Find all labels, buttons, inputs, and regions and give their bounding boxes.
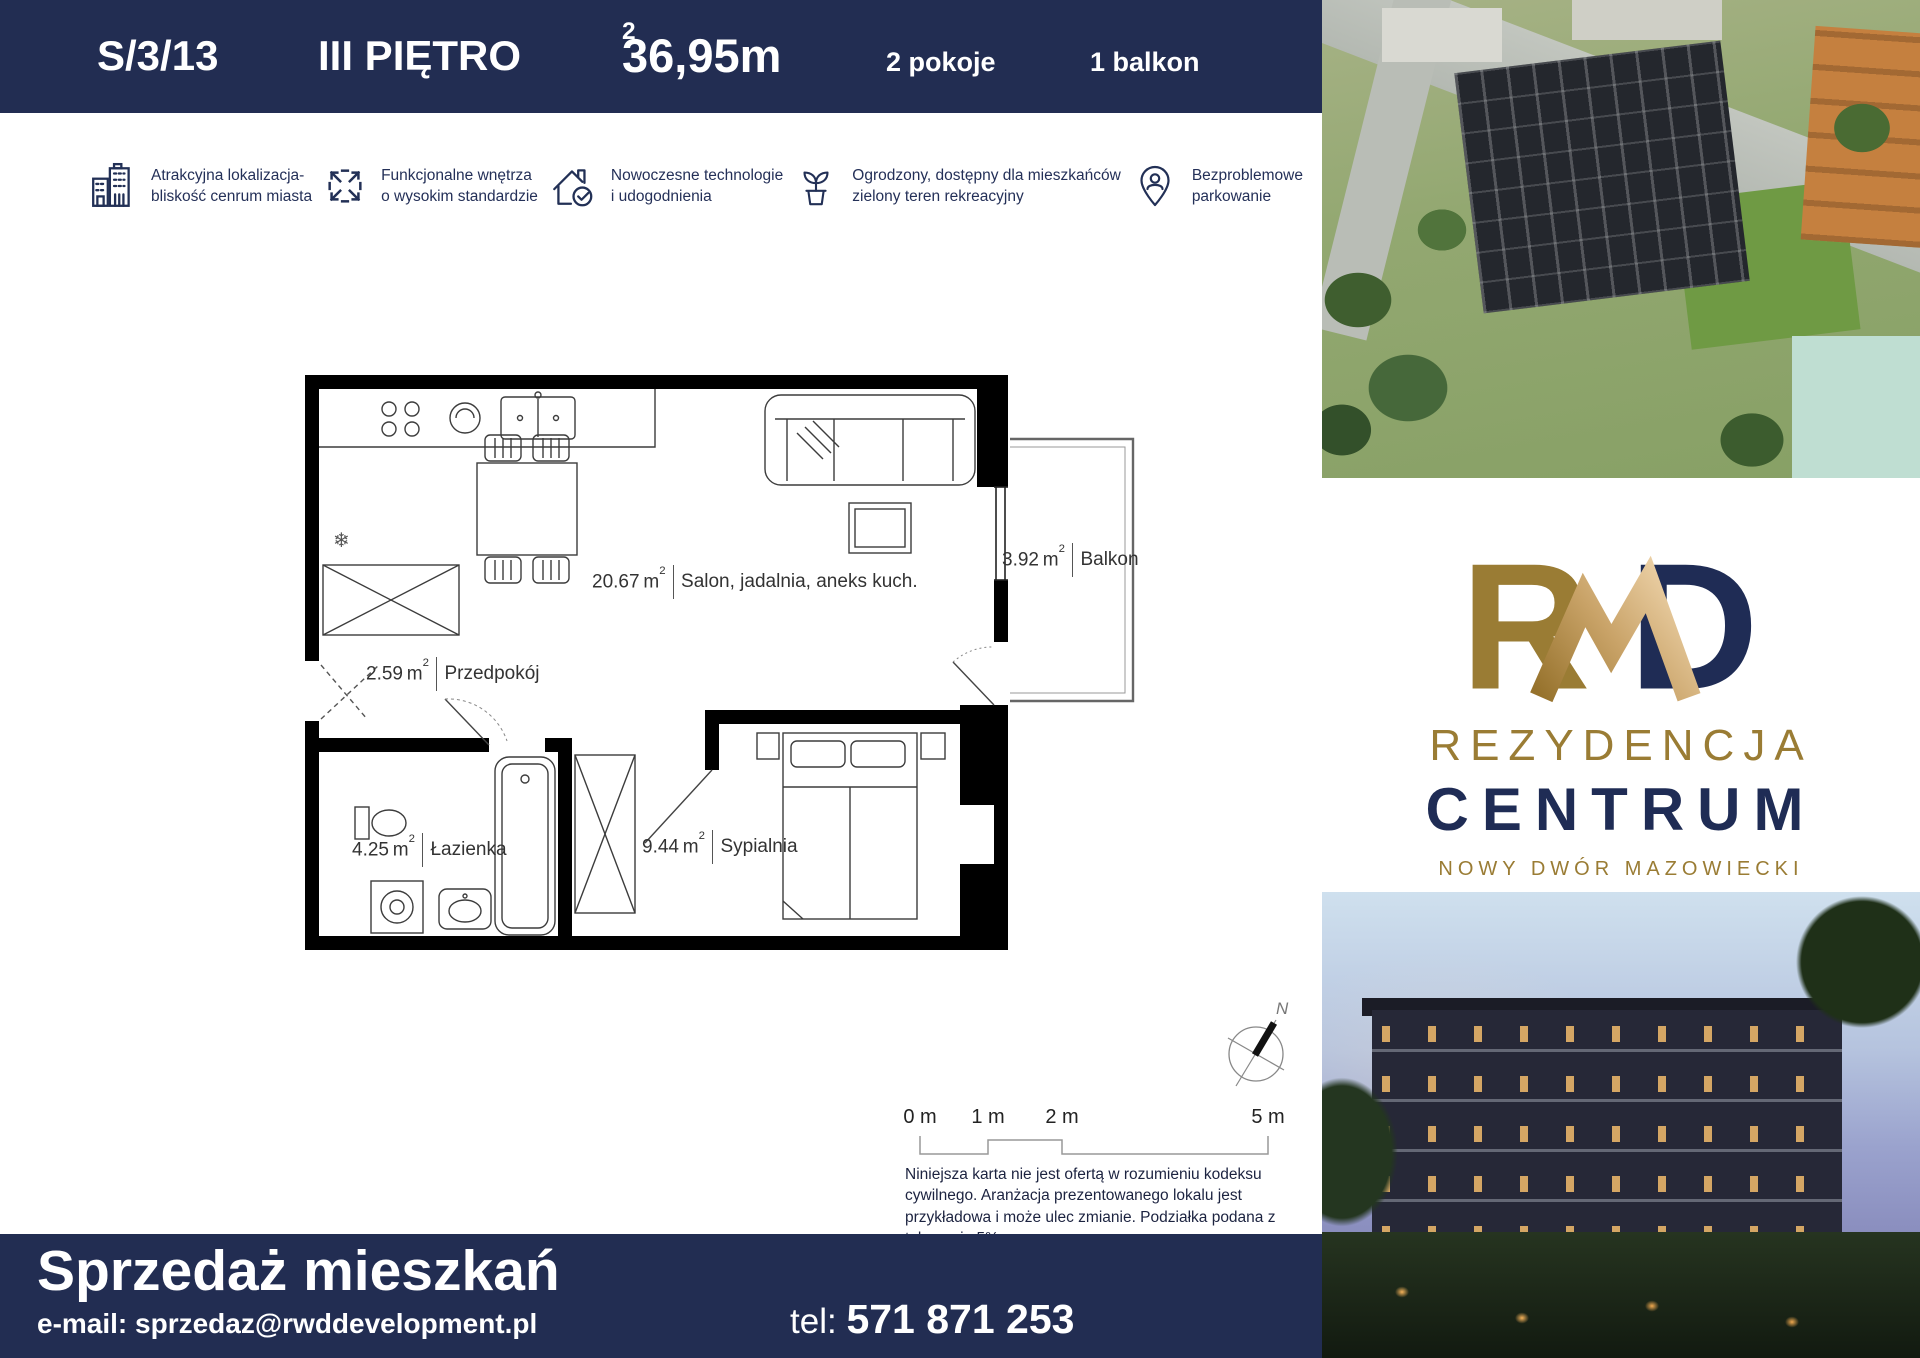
room-area: 2.59 xyxy=(366,663,403,684)
feature-text: Ogrodzony, dostępny dla mieszkańców ziel… xyxy=(852,165,1121,208)
room-area: 20.67 xyxy=(592,571,640,592)
feature-tech: Nowoczesne technologie i udogodnienia xyxy=(548,161,783,211)
room-name: Balkon xyxy=(1080,549,1138,571)
city-buildings-icon xyxy=(88,161,138,211)
label-divider xyxy=(1072,543,1074,577)
room-sup: 2 xyxy=(1059,543,1065,555)
scale-tick-5m: 5 m xyxy=(1251,1106,1284,1129)
apartment-offer-card: S/3/13 III PIĘTRO 36,95m2 2 pokoje 1 bal… xyxy=(0,0,1920,1358)
room-name: Salon, jadalnia, aneks kuch. xyxy=(681,571,918,593)
room-name: Sypialnia xyxy=(720,836,797,858)
room-name: Przedpokój xyxy=(444,663,539,685)
room-label-sypialnia: 9.44 m2 Sypialnia xyxy=(642,830,798,864)
brand-logo: R D REZYDENCJA CENTRUM NOWY DWÓR MAZOWIE… xyxy=(1322,478,1920,892)
label-divider xyxy=(422,833,424,867)
feature-line1: Ogrodzony, dostępny dla mieszkańców xyxy=(852,165,1121,186)
rwd-monogram: R D xyxy=(1451,530,1791,705)
room-sup: 2 xyxy=(699,830,705,842)
label-divider xyxy=(712,830,714,864)
floor-label: III PIĘTRO xyxy=(318,32,521,80)
area-label: 36,95m2 xyxy=(622,28,636,83)
footer-bar: Sprzedaż mieszkań e-mail: sprzedaz@rwdde… xyxy=(0,1234,1322,1358)
feature-text: Bezproblemowe parkowanie xyxy=(1192,165,1303,208)
sofa xyxy=(765,395,975,485)
bed xyxy=(757,733,945,919)
rooms-count: 2 pokoje xyxy=(886,47,996,78)
dining-set xyxy=(477,435,577,583)
compass-icon: N xyxy=(1222,998,1298,1092)
footer-email: e-mail: sprzedaz@rwddevelopment.pl xyxy=(37,1308,537,1340)
balcony-count: 1 balkon xyxy=(1090,47,1200,78)
room-unit: m xyxy=(643,571,659,592)
photo-tree-2 xyxy=(1322,1032,1432,1272)
feature-line2: i udogodnienia xyxy=(611,186,783,207)
plant-pot-icon xyxy=(793,163,839,209)
phone-label: tel: xyxy=(790,1302,837,1341)
footer-phone: tel: 571 871 253 xyxy=(790,1296,1074,1343)
hall-wardrobe xyxy=(323,565,459,635)
scale-bar: 0 m 1 m 2 m 5 m xyxy=(905,1106,1305,1158)
feature-garden: Ogrodzony, dostępny dla mieszkańców ziel… xyxy=(793,163,1121,209)
photo-tree xyxy=(1752,892,1920,1072)
room-unit: m xyxy=(407,663,423,684)
label-divider xyxy=(436,657,438,691)
feature-line1: Funkcjonalne wnętrza xyxy=(381,165,538,186)
label-divider xyxy=(673,565,675,599)
room-label-balkon: 3.92 m2 Balkon xyxy=(1002,543,1139,577)
photo-trees xyxy=(1322,0,1920,478)
phone-number: 571 871 253 xyxy=(846,1296,1074,1342)
room-label-przedpokoj: 2.59 m2 Przedpokój xyxy=(366,657,540,691)
room-area: 4.25 xyxy=(352,839,389,860)
feature-text: Atrakcyjna lokalizacja- bliskość cenrum … xyxy=(151,165,312,208)
scale-tick-2m: 2 m xyxy=(1045,1106,1078,1129)
header-bar: S/3/13 III PIĘTRO 36,95m2 2 pokoje 1 bal… xyxy=(0,0,1322,113)
room-area: 3.92 xyxy=(1002,549,1039,570)
feature-text: Funkcjonalne wnętrza o wysokim standardz… xyxy=(381,165,538,208)
kitchen xyxy=(319,389,655,447)
feature-line2: zielony teren rekreacyjny xyxy=(852,186,1121,207)
room-label-lazienka: 4.25 m2 Łazienka xyxy=(352,833,507,867)
feature-parking: Bezproblemowe parkowanie xyxy=(1131,162,1303,210)
feature-line1: Bezproblemowe xyxy=(1192,165,1303,186)
room-unit: m xyxy=(393,839,409,860)
room-area: 9.44 xyxy=(642,836,679,857)
room-label-salon: 20.67 m2 Salon, jadalnia, aneks kuch. xyxy=(592,565,918,599)
scale-tick-0m: 0 m xyxy=(903,1106,936,1129)
house-check-icon xyxy=(548,161,598,211)
scale-line xyxy=(905,1132,1305,1158)
room-name: Łazienka xyxy=(430,839,506,861)
footer-title: Sprzedaż mieszkań xyxy=(37,1238,560,1304)
feature-line1: Atrakcyjna lokalizacja- xyxy=(151,165,312,186)
parking-pin-icon xyxy=(1131,162,1179,210)
room-sup: 2 xyxy=(423,657,429,669)
brand-name-line1: REZYDENCJA xyxy=(1429,721,1812,771)
expand-arrows-icon xyxy=(322,163,368,209)
bedroom-wardrobe xyxy=(575,755,635,913)
brand-name-line2: CENTRUM xyxy=(1426,775,1817,844)
room-sup: 2 xyxy=(409,833,415,845)
compass-north-label: N xyxy=(1276,999,1289,1018)
scale-tick-1m: 1 m xyxy=(971,1106,1004,1129)
feature-text: Nowoczesne technologie i udogodnienia xyxy=(611,165,783,208)
vent-symbol: ❄ xyxy=(333,530,350,552)
room-sup: 2 xyxy=(659,565,665,577)
room-unit: m xyxy=(1043,549,1059,570)
feature-line2: bliskość cenrum miasta xyxy=(151,186,312,207)
features-row: Atrakcyjna lokalizacja- bliskość cenrum … xyxy=(88,150,1303,222)
building-render-photo xyxy=(1322,892,1920,1358)
feature-location: Atrakcyjna lokalizacja- bliskość cenrum … xyxy=(88,161,312,211)
feature-interiors: Funkcjonalne wnętrza o wysokim standardz… xyxy=(322,163,538,209)
feature-line2: o wysokim standardzie xyxy=(381,186,538,207)
floor-plan: ❄ xyxy=(305,375,1140,955)
feature-line2: parkowanie xyxy=(1192,186,1303,207)
aerial-photo xyxy=(1322,0,1920,478)
coffee-table xyxy=(849,503,911,553)
brand-city: NOWY DWÓR MAZOWIECKI xyxy=(1438,858,1803,881)
feature-line1: Nowoczesne technologie xyxy=(611,165,783,186)
room-unit: m xyxy=(683,836,699,857)
unit-id: S/3/13 xyxy=(97,32,218,80)
area-value: 36,95m xyxy=(622,28,781,83)
area-sup: 2 xyxy=(622,18,636,45)
